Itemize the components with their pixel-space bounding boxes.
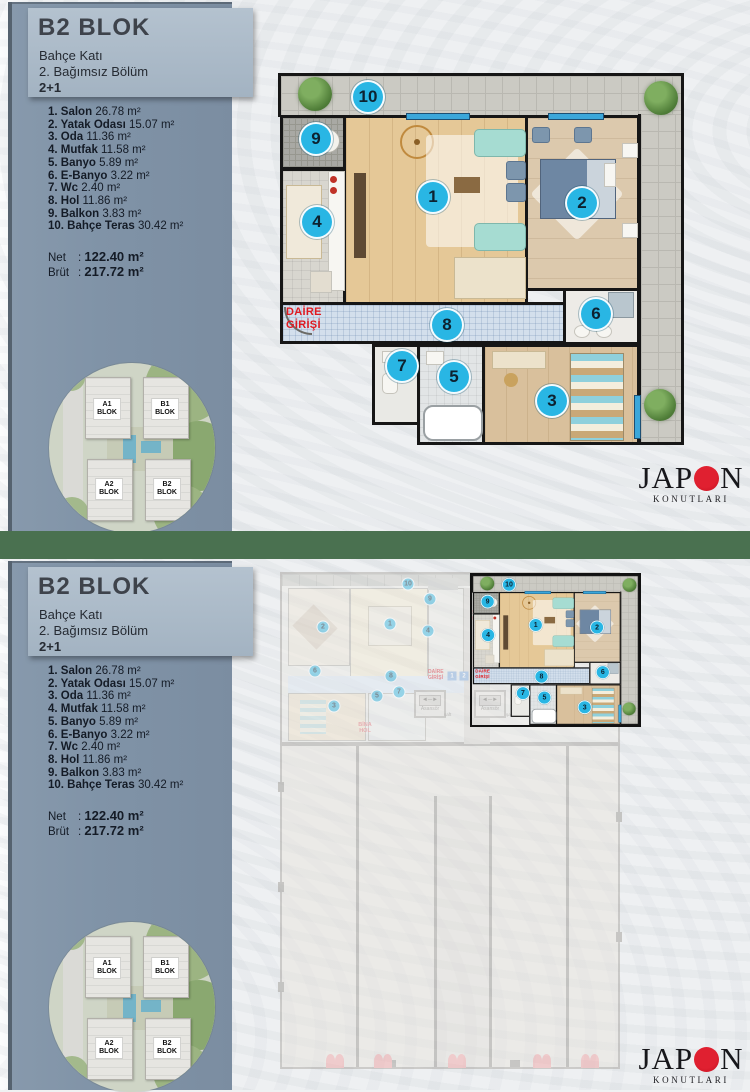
room-number-badge: 4 bbox=[422, 625, 435, 638]
interior-wall bbox=[566, 746, 569, 1067]
room-number-badge: 4 bbox=[300, 205, 334, 239]
site-trees bbox=[55, 497, 89, 531]
room-area-list: 1. Salon 26.78 m²2. Yatak Odası 15.07 m²… bbox=[48, 106, 228, 233]
coffee-table bbox=[454, 177, 480, 193]
bathtub bbox=[423, 405, 483, 441]
room-number-badge: 6 bbox=[596, 665, 610, 679]
elevator-icon: ◄─► bbox=[419, 695, 441, 706]
dining-table bbox=[544, 649, 574, 666]
wall-stub bbox=[278, 882, 284, 892]
corridor bbox=[437, 796, 489, 1067]
site-block-label: B2BLOK bbox=[153, 478, 181, 500]
desk bbox=[560, 687, 582, 694]
unit-label: 2. Bağımsız Bölüm bbox=[39, 64, 148, 79]
brand-name: JAPN bbox=[634, 1043, 748, 1075]
site-trees bbox=[57, 365, 85, 391]
brand-subtitle: KONUTLARI bbox=[634, 494, 748, 504]
room-number-badge: 2 bbox=[590, 621, 604, 635]
room-number-badge: 7 bbox=[516, 686, 530, 700]
stool bbox=[504, 373, 518, 387]
entrance-door-icon bbox=[581, 1054, 599, 1068]
site-block-label: A1BLOK bbox=[93, 957, 121, 979]
unit-floor-plan-mini: DAİREGİRİŞİ 12345678910 bbox=[472, 575, 639, 725]
brand-subtitle: KONUTLARI bbox=[634, 1075, 748, 1085]
room-area-list: 1. Salon 26.78 m²2. Yatak Odası 15.07 m²… bbox=[48, 665, 228, 792]
logo-red-circle-icon bbox=[694, 466, 719, 491]
elevator: ◄─►Asansör bbox=[414, 690, 446, 718]
room-number-badge: 8 bbox=[535, 670, 549, 684]
site-pool bbox=[141, 441, 161, 453]
terrace bbox=[278, 73, 684, 117]
fridge bbox=[310, 271, 332, 293]
panel-divider bbox=[0, 531, 750, 559]
unit-header: B2 BLOK Bahçe Katı 2. Bağımsız Bölüm 2+1 bbox=[28, 567, 253, 656]
armchair bbox=[532, 127, 550, 143]
room-number-badge: 3 bbox=[578, 700, 592, 714]
plant bbox=[644, 389, 676, 421]
site-trees bbox=[57, 924, 85, 950]
apartment-entry-label: DAİREGİRİŞİ bbox=[428, 670, 444, 681]
room-number-badge: 10 bbox=[402, 578, 415, 591]
shaft-label: şaft bbox=[444, 712, 451, 717]
stove-burner bbox=[330, 176, 337, 183]
sofa bbox=[474, 223, 526, 251]
tv-unit bbox=[503, 615, 508, 649]
dining-table bbox=[454, 257, 526, 299]
room-number-badge: 3 bbox=[328, 700, 341, 713]
room-number-badge: 1 bbox=[529, 618, 543, 632]
wall-stub bbox=[616, 812, 622, 822]
room-number-badge: 5 bbox=[437, 360, 471, 394]
panel-bottom: B2 BLOK Bahçe Katı 2. Bağımsız Bölüm 2+1… bbox=[0, 559, 750, 1090]
room-number-badge: 9 bbox=[481, 595, 495, 609]
room-number-badge: 8 bbox=[430, 308, 464, 342]
armchair bbox=[566, 619, 574, 627]
fridge bbox=[485, 655, 494, 664]
coffee-table bbox=[544, 617, 555, 623]
room-list-item: 6. E-Banyo 3.22 m² bbox=[48, 170, 228, 183]
interior-wall bbox=[356, 746, 359, 1067]
armchair bbox=[574, 127, 592, 143]
desk bbox=[492, 351, 546, 369]
room-number-badge: 10 bbox=[502, 578, 516, 592]
highlighted-unit: DAİREGİRİŞİ 12345678910 bbox=[470, 573, 641, 727]
room-list-item: 3. Oda 11.36 m² bbox=[48, 690, 228, 703]
site-block-label: A1BLOK bbox=[93, 398, 121, 420]
mirror-bed bbox=[300, 700, 326, 734]
room-number-badge: 7 bbox=[393, 686, 406, 699]
room-list-item: 1. Salon 26.78 m² bbox=[48, 106, 228, 119]
room-number-badge: 1 bbox=[416, 180, 450, 214]
area-totals: Net: 122.40 m² Brüt: 217.72 m² bbox=[48, 809, 144, 839]
unit-label: 2. Bağımsız Bölüm bbox=[39, 623, 148, 638]
room-number-badge: 3 bbox=[535, 384, 569, 418]
site-pool bbox=[141, 1000, 161, 1012]
room-list-item: 8. Hol 11.86 m² bbox=[48, 754, 228, 767]
window bbox=[583, 591, 606, 594]
stove-burner bbox=[493, 617, 496, 620]
site-block-label: B1BLOK bbox=[151, 957, 179, 979]
entrance-door-icon bbox=[448, 1054, 466, 1068]
room-number-badge: 4 bbox=[481, 628, 495, 642]
room-list-item: 10. Bahçe Teras 30.42 m² bbox=[48, 220, 228, 233]
site-block-label: B2BLOK bbox=[153, 1037, 181, 1059]
floor-label: Bahçe Katı bbox=[39, 48, 103, 63]
window bbox=[548, 113, 604, 120]
stove-burner bbox=[330, 187, 337, 194]
gross-area: Brüt: 217.72 m² bbox=[48, 824, 144, 839]
interior-wall bbox=[489, 796, 492, 1067]
room-number-badge: 6 bbox=[579, 297, 613, 331]
site-plan: A1BLOKB1BLOKA2BLOKB2BLOK bbox=[49, 363, 215, 533]
wall-stub bbox=[510, 1060, 520, 1067]
room-list-item: 7. Wc 2.40 m² bbox=[48, 741, 228, 754]
room-list-item: 8. Hol 11.86 m² bbox=[48, 195, 228, 208]
pillow bbox=[604, 163, 616, 187]
room-number-badge: 2 bbox=[317, 621, 330, 634]
room-number-badge: 9 bbox=[424, 593, 437, 606]
armchair bbox=[506, 183, 526, 202]
block-title: B2 BLOK bbox=[38, 14, 150, 42]
unit-number-marker: 2 bbox=[460, 672, 469, 681]
bathtub bbox=[532, 709, 557, 724]
brand-logo: JAPN KONUTLARI bbox=[634, 462, 748, 504]
nightstand bbox=[622, 223, 638, 238]
sofa bbox=[553, 598, 574, 609]
window bbox=[406, 113, 470, 120]
gross-area: Brüt: 217.72 m² bbox=[48, 265, 144, 280]
net-area: Net: 122.40 m² bbox=[48, 250, 144, 265]
sofa bbox=[553, 635, 574, 646]
logo-red-circle-icon bbox=[694, 1047, 719, 1072]
room-list-item: 4. Mutfak 11.58 m² bbox=[48, 703, 228, 716]
unit-header: B2 BLOK Bahçe Katı 2. Bağımsız Bölüm 2+1 bbox=[28, 8, 253, 97]
nightstand bbox=[622, 143, 638, 158]
wall-stub bbox=[278, 782, 284, 792]
site-block-label: A2BLOK bbox=[95, 478, 123, 500]
room-list-item: 5. Banyo 5.89 m² bbox=[48, 716, 228, 729]
room-list-item: 6. E-Banyo 3.22 m² bbox=[48, 729, 228, 742]
hallway bbox=[280, 302, 566, 344]
plant bbox=[623, 702, 636, 715]
armchair bbox=[566, 610, 574, 618]
entrance-door-icon bbox=[326, 1054, 344, 1068]
room-list-item: 4. Mutfak 11.58 m² bbox=[48, 144, 228, 157]
brand-name: JAPN bbox=[634, 462, 748, 494]
entrance-door-icon bbox=[374, 1054, 392, 1068]
site-trees bbox=[55, 1056, 89, 1090]
room-number-badge: 6 bbox=[309, 665, 322, 678]
site-block-label: B1BLOK bbox=[151, 398, 179, 420]
room-number-badge: 5 bbox=[371, 690, 384, 703]
plant bbox=[298, 77, 332, 111]
site-plan: A1BLOKB1BLOKA2BLOKB2BLOK bbox=[49, 922, 215, 1092]
area-totals: Net: 122.40 m² Brüt: 217.72 m² bbox=[48, 250, 144, 280]
room-list-item: 9. Balkon 3.83 m² bbox=[48, 208, 228, 221]
room-number-badge: 7 bbox=[385, 349, 419, 383]
window bbox=[618, 705, 621, 723]
room-number-badge: 5 bbox=[537, 691, 551, 705]
mirror-balcony bbox=[428, 578, 458, 590]
apartment-entry-label: DAİREGİRİŞİ bbox=[475, 669, 490, 679]
site-block-label: A2BLOK bbox=[95, 1037, 123, 1059]
sink bbox=[426, 351, 444, 365]
apartment-entry-label: DAİREGİRİŞİ bbox=[286, 306, 322, 331]
bed bbox=[592, 688, 614, 723]
room-list-item: 1. Salon 26.78 m² bbox=[48, 665, 228, 678]
room-number-badge: 2 bbox=[565, 186, 599, 220]
wall-stub bbox=[616, 932, 622, 942]
room-list-item: 5. Banyo 5.89 m² bbox=[48, 157, 228, 170]
hallway bbox=[473, 667, 591, 684]
entrance-door-icon bbox=[533, 1054, 551, 1068]
room-list-item: 2. Yatak Odası 15.07 m² bbox=[48, 678, 228, 691]
room-list-item: 2. Yatak Odası 15.07 m² bbox=[48, 119, 228, 132]
window bbox=[634, 395, 641, 439]
window bbox=[525, 591, 551, 594]
unit-number-marker: 1 bbox=[448, 672, 457, 681]
plant bbox=[623, 578, 637, 592]
room-number-badge: 9 bbox=[299, 122, 333, 156]
room-list-item: 10. Bahçe Teras 30.42 m² bbox=[48, 779, 228, 792]
plant bbox=[480, 577, 494, 591]
bed bbox=[570, 353, 624, 441]
room-number-badge: 10 bbox=[351, 80, 385, 114]
layout-label: 2+1 bbox=[39, 639, 61, 654]
layout-label: 2+1 bbox=[39, 80, 61, 95]
unit-floor-plan: DAİREGİRİŞİ 12345678910 bbox=[278, 73, 684, 445]
room-number-badge: 8 bbox=[385, 670, 398, 683]
brand-logo: JAPN KONUTLARI bbox=[634, 1043, 748, 1085]
tv-unit bbox=[354, 173, 366, 258]
sofa bbox=[474, 129, 526, 157]
room-list-item: 9. Balkon 3.83 m² bbox=[48, 767, 228, 780]
wall-stub bbox=[278, 982, 284, 992]
floor-label: Bahçe Katı bbox=[39, 607, 103, 622]
panel-top: B2 BLOK Bahçe Katı 2. Bağımsız Bölüm 2+1… bbox=[0, 0, 750, 531]
armchair bbox=[506, 161, 526, 180]
room-number-badge: 1 bbox=[384, 618, 397, 631]
room-list-item: 3. Oda 11.36 m² bbox=[48, 131, 228, 144]
net-area: Net: 122.40 m² bbox=[48, 809, 144, 824]
building-hall-label: BİNAHOL bbox=[348, 722, 382, 734]
room-list-item: 7. Wc 2.40 m² bbox=[48, 182, 228, 195]
terrace bbox=[472, 575, 639, 593]
plant bbox=[644, 81, 678, 115]
block-title: B2 BLOK bbox=[38, 573, 150, 601]
